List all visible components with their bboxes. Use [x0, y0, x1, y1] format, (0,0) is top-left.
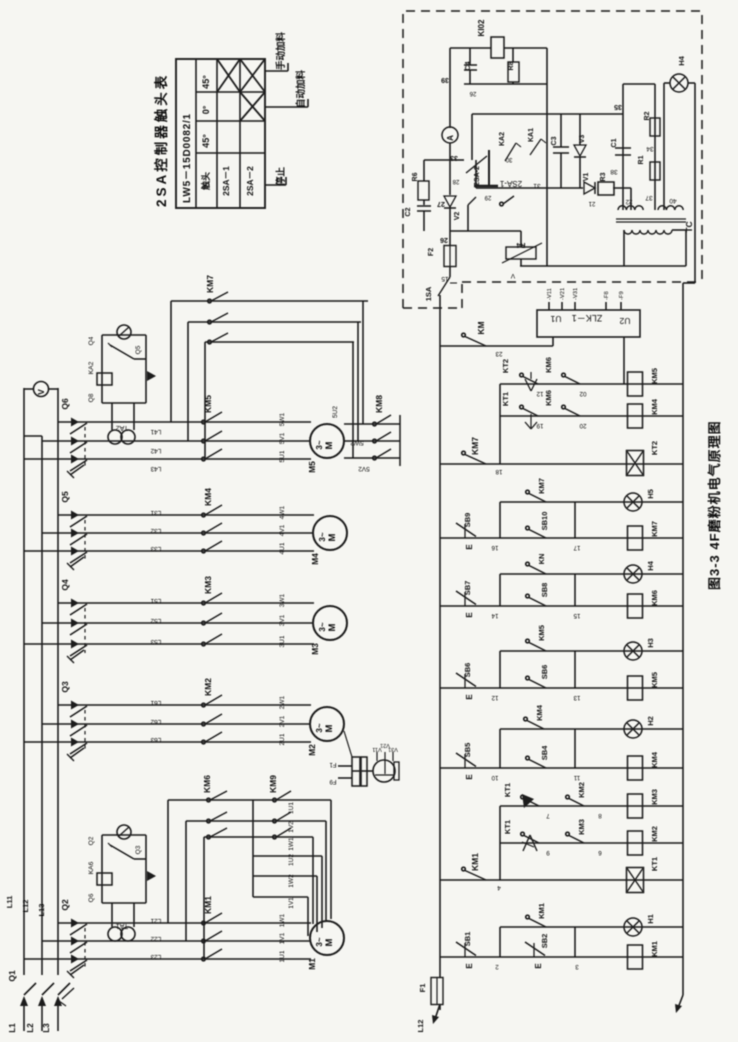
svg-text:KM3: KM3 — [650, 789, 659, 805]
svg-text:KM4: KM4 — [535, 704, 544, 721]
svg-text:KM2: KM2 — [577, 782, 586, 798]
svg-text:19: 19 — [536, 422, 543, 429]
svg-text:3~: 3~ — [315, 723, 324, 732]
svg-text:L61: L61 — [150, 699, 161, 706]
svg-text:1U1: 1U1 — [288, 802, 295, 814]
svg-text:V31: V31 — [388, 746, 398, 752]
svg-text:KM4: KM4 — [203, 488, 213, 506]
svg-text:2V1: 2V1 — [279, 715, 286, 727]
svg-text:KM4: KM4 — [650, 751, 659, 768]
svg-text:39: 39 — [441, 76, 449, 83]
svg-text:L11: L11 — [5, 896, 14, 909]
svg-text:45°: 45° — [201, 75, 211, 89]
svg-text:5V2: 5V2 — [358, 465, 370, 472]
svg-text:1V1: 1V1 — [288, 897, 295, 909]
svg-text:M: M — [324, 938, 335, 946]
svg-text:-V21: -V21 — [560, 288, 566, 300]
svg-text:LW5－15D0082/1: LW5－15D0082/1 — [182, 113, 193, 203]
svg-text:1SA: 1SA — [424, 286, 433, 301]
svg-text:1V2: 1V2 — [288, 821, 295, 833]
svg-text:28: 28 — [452, 178, 459, 184]
svg-text:KN: KN — [537, 554, 546, 565]
svg-text:-V31: -V31 — [573, 288, 579, 300]
svg-text:4: 4 — [497, 884, 501, 891]
svg-text:KA2: KA2 — [499, 132, 506, 146]
svg-text:12: 12 — [536, 390, 543, 397]
svg-text:34: 34 — [646, 145, 654, 152]
svg-text:20: 20 — [579, 422, 586, 429]
svg-text:11: 11 — [573, 774, 580, 781]
svg-text:3W1: 3W1 — [279, 593, 286, 607]
svg-text:SB4: SB4 — [540, 745, 549, 760]
svg-text:23: 23 — [495, 350, 502, 357]
svg-text:U2: U2 — [619, 316, 630, 326]
svg-text:Q6: Q6 — [60, 398, 70, 410]
svg-text:图3-3 4F磨粉机电气原理图: 图3-3 4F磨粉机电气原理图 — [707, 420, 722, 590]
svg-text:-F8: -F8 — [604, 291, 610, 300]
svg-text:1W2: 1W2 — [288, 874, 295, 888]
svg-text:16: 16 — [491, 544, 498, 551]
svg-text:L23: L23 — [150, 953, 161, 960]
svg-text:KM5: KM5 — [650, 672, 659, 688]
svg-text:C4: C4 — [465, 61, 472, 70]
svg-text:KM6: KM6 — [544, 390, 553, 406]
svg-text:Q2: Q2 — [60, 899, 70, 911]
svg-text:C1: C1 — [611, 138, 618, 147]
svg-text:R3: R3 — [600, 172, 607, 181]
svg-text:F9: F9 — [329, 778, 337, 784]
svg-text:27: 27 — [437, 200, 445, 207]
svg-text:4U1: 4U1 — [279, 542, 286, 554]
svg-text:KM: KM — [476, 321, 486, 334]
svg-text:5V1: 5V1 — [279, 432, 286, 444]
svg-text:L53: L53 — [150, 638, 161, 645]
svg-text:L63: L63 — [150, 736, 161, 743]
svg-text:KA1: KA1 — [528, 128, 535, 142]
svg-text:KM6: KM6 — [650, 590, 659, 606]
svg-text:L32: L32 — [150, 527, 161, 534]
svg-text:触头: 触头 — [200, 172, 211, 191]
svg-text:2: 2 — [495, 963, 499, 970]
svg-text:L51: L51 — [150, 597, 161, 604]
svg-text:10: 10 — [491, 774, 498, 781]
svg-text:KM5: KM5 — [650, 368, 659, 384]
svg-text:4V1: 4V1 — [279, 524, 286, 536]
svg-text:KT1: KT1 — [501, 392, 510, 406]
svg-text:KM5: KM5 — [537, 625, 546, 641]
svg-text:KM7: KM7 — [205, 275, 215, 293]
svg-text:ZLK－1: ZLK－1 — [572, 313, 603, 323]
svg-text:Q4: Q4 — [60, 579, 70, 591]
svg-text:3: 3 — [575, 963, 579, 970]
svg-text:C3: C3 — [551, 136, 558, 145]
svg-text:37: 37 — [645, 194, 653, 201]
svg-text:2SA－2: 2SA－2 — [245, 166, 255, 196]
svg-text:L22: L22 — [150, 935, 161, 942]
svg-text:Q3: Q3 — [135, 845, 142, 854]
svg-text:M: M — [324, 441, 335, 449]
svg-text:手动加料: 手动加料 — [275, 31, 287, 70]
svg-text:SB8: SB8 — [540, 583, 549, 598]
svg-text:21: 21 — [588, 200, 595, 206]
svg-text:L1: L1 — [8, 1023, 17, 1033]
svg-text:3~: 3~ — [318, 622, 327, 631]
svg-text:2SA控制器触头表: 2SA控制器触头表 — [153, 73, 169, 207]
svg-text:1V1: 1V1 — [279, 932, 286, 944]
svg-text:R8: R8 — [508, 61, 515, 70]
svg-text:Q3: Q3 — [60, 681, 70, 693]
svg-text:3~: 3~ — [315, 440, 324, 449]
svg-text:E: E — [465, 544, 474, 550]
svg-text:14: 14 — [491, 612, 498, 619]
svg-text:KM4: KM4 — [650, 398, 659, 415]
svg-text:L2: L2 — [26, 1023, 35, 1033]
svg-text:3V1: 3V1 — [279, 614, 286, 626]
svg-text:35: 35 — [614, 103, 622, 110]
svg-text:KM1: KM1 — [470, 853, 480, 871]
svg-text:M4: M4 — [310, 553, 320, 565]
svg-text:KT2: KT2 — [650, 441, 659, 455]
svg-text:R6: R6 — [412, 172, 419, 181]
svg-text:F2: F2 — [428, 248, 435, 256]
svg-text:KM7: KM7 — [537, 478, 546, 494]
svg-text:SB2: SB2 — [540, 934, 549, 949]
svg-text:V: V — [510, 272, 515, 279]
svg-text:L43: L43 — [150, 465, 161, 472]
svg-text:KT2: KT2 — [501, 359, 510, 373]
svg-text:KT1: KT1 — [503, 783, 512, 797]
svg-text:M3: M3 — [310, 643, 320, 655]
svg-text:L21: L21 — [150, 917, 161, 924]
svg-text:3~: 3~ — [315, 937, 324, 946]
svg-text:V2: V2 — [454, 212, 461, 221]
svg-text:5U2: 5U2 — [332, 406, 339, 418]
svg-text:2U1: 2U1 — [279, 733, 286, 745]
svg-text:L12: L12 — [21, 900, 30, 913]
svg-text:22: 22 — [625, 198, 632, 204]
svg-text:45°: 45° — [201, 134, 211, 148]
svg-text:1U1: 1U1 — [279, 950, 286, 962]
svg-text:KM7: KM7 — [650, 521, 659, 537]
svg-text:2W1: 2W1 — [279, 695, 286, 709]
svg-text:13: 13 — [573, 694, 580, 701]
svg-text:3~: 3~ — [318, 532, 327, 541]
svg-text:E: E — [465, 774, 474, 780]
svg-text:Q5: Q5 — [60, 491, 70, 503]
svg-text:E: E — [465, 612, 474, 618]
svg-text:17: 17 — [573, 544, 580, 551]
svg-text:M2: M2 — [307, 744, 317, 756]
svg-text:9: 9 — [546, 849, 550, 856]
svg-text:KM2: KM2 — [203, 678, 213, 696]
svg-text:L62: L62 — [150, 718, 161, 725]
svg-text:H3: H3 — [646, 638, 655, 648]
svg-text:KM3: KM3 — [203, 576, 213, 594]
svg-text:KM3: KM3 — [577, 819, 586, 835]
svg-text:L33: L33 — [150, 545, 161, 552]
svg-text:-F9: -F9 — [619, 291, 625, 300]
svg-text:26: 26 — [469, 90, 476, 96]
svg-text:15: 15 — [573, 612, 580, 619]
svg-text:M: M — [324, 724, 335, 732]
svg-text:KT1: KT1 — [650, 857, 659, 871]
svg-text:R1: R1 — [638, 155, 645, 164]
svg-text:31: 31 — [533, 182, 541, 189]
svg-text:KM1: KM1 — [537, 903, 546, 919]
svg-text:2SA－1: 2SA－1 — [221, 166, 231, 196]
svg-text:U1: U1 — [550, 314, 561, 324]
svg-text:18: 18 — [495, 468, 502, 475]
svg-text:V: V — [36, 389, 46, 395]
svg-text:H1: H1 — [646, 914, 655, 924]
svg-text:29: 29 — [484, 194, 491, 200]
svg-text:L52: L52 — [150, 617, 161, 624]
svg-text:-V11: -V11 — [547, 288, 553, 300]
svg-text:V1: V1 — [583, 173, 590, 182]
svg-text:H4: H4 — [646, 560, 655, 570]
svg-text:5W2: 5W2 — [350, 439, 364, 446]
svg-text:26: 26 — [440, 236, 448, 243]
svg-text:5W1: 5W1 — [279, 412, 286, 426]
svg-text:5U1: 5U1 — [279, 450, 286, 462]
svg-text:KM1: KM1 — [650, 941, 659, 957]
svg-text:KM6: KM6 — [544, 357, 553, 373]
svg-text:E: E — [465, 694, 474, 700]
svg-text:C2: C2 — [405, 207, 412, 216]
svg-text:4W1: 4W1 — [279, 505, 286, 519]
svg-text:KM8: KM8 — [374, 395, 384, 413]
svg-text:SB10: SB10 — [540, 512, 549, 531]
svg-text:M: M — [327, 623, 338, 631]
svg-text:A: A — [446, 135, 455, 141]
svg-text:E: E — [534, 963, 543, 969]
svg-text:7: 7 — [546, 812, 550, 819]
svg-text:KA2: KA2 — [88, 361, 95, 374]
svg-text:8: 8 — [598, 812, 602, 819]
svg-text:KA6: KA6 — [88, 861, 95, 874]
svg-text:Q8: Q8 — [88, 393, 95, 402]
svg-text:L41: L41 — [150, 428, 161, 435]
svg-text:Q6: Q6 — [88, 893, 95, 902]
svg-text:M1: M1 — [307, 958, 317, 970]
svg-text:自动加料: 自动加料 — [295, 69, 307, 108]
svg-text:L42: L42 — [150, 447, 161, 454]
svg-text:H2: H2 — [646, 716, 655, 726]
svg-text:12: 12 — [491, 694, 498, 701]
svg-text:E: E — [465, 963, 474, 969]
svg-text:Q1: Q1 — [7, 970, 17, 982]
svg-text:1W1: 1W1 — [279, 913, 286, 927]
svg-text:M: M — [327, 533, 338, 541]
svg-text:6: 6 — [598, 849, 602, 856]
svg-text:KM6: KM6 — [202, 775, 212, 793]
svg-text:0°: 0° — [201, 105, 211, 114]
svg-text:H5: H5 — [646, 489, 655, 499]
svg-text:Q5: Q5 — [135, 345, 142, 354]
svg-text:02: 02 — [579, 390, 586, 397]
svg-text:KM9: KM9 — [268, 775, 278, 793]
svg-text:KM7: KM7 — [470, 437, 480, 455]
svg-text:2SA-2: 2SA-2 — [474, 166, 481, 186]
svg-text:L13: L13 — [37, 904, 46, 917]
svg-text:L12: L12 — [416, 1020, 425, 1033]
svg-text:38: 38 — [610, 168, 618, 175]
svg-text:F1: F1 — [418, 984, 427, 993]
svg-text:KT1: KT1 — [503, 820, 512, 834]
svg-text:M5: M5 — [307, 461, 317, 473]
svg-text:Q4: Q4 — [88, 336, 95, 345]
svg-text:KM2: KM2 — [650, 826, 659, 842]
svg-text:SB6: SB6 — [540, 665, 549, 680]
svg-text:1U2: 1U2 — [288, 854, 295, 866]
svg-text:F1: F1 — [329, 761, 337, 767]
svg-text:H4: H4 — [677, 55, 686, 65]
svg-text:30: 30 — [505, 156, 512, 162]
svg-text:KI02: KI02 — [477, 19, 486, 36]
svg-text:3U1: 3U1 — [279, 635, 286, 647]
svg-text:1W1: 1W1 — [288, 837, 295, 851]
svg-text:L3: L3 — [42, 1023, 51, 1033]
svg-text:2SA-1: 2SA-1 — [499, 179, 522, 188]
svg-text:L31: L31 — [150, 509, 161, 516]
svg-text:Q2: Q2 — [88, 836, 95, 845]
svg-text:40: 40 — [669, 197, 677, 204]
